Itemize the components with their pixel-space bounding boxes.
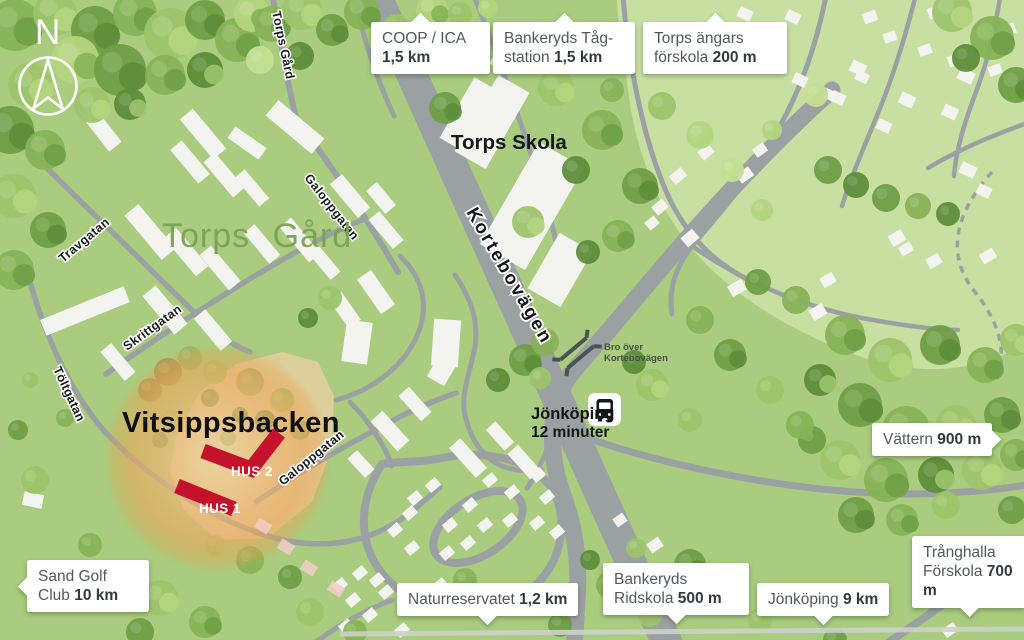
tree-highlight bbox=[889, 413, 908, 432]
tree-highlight bbox=[724, 162, 734, 172]
tree-highlight bbox=[194, 611, 207, 624]
tree-highlight bbox=[1002, 500, 1013, 511]
tree bbox=[804, 83, 828, 107]
tree bbox=[453, 568, 477, 592]
tree bbox=[296, 598, 324, 626]
tree-highlight bbox=[79, 92, 93, 106]
tree-highlight bbox=[808, 87, 818, 97]
tree bbox=[601, 124, 623, 146]
tree-highlight bbox=[923, 462, 937, 476]
tree bbox=[361, 7, 381, 27]
site-label-vitsippsbacken: Vitsippsbacken bbox=[122, 407, 340, 439]
tree-highlight bbox=[790, 415, 801, 426]
hus1-label: HUS 1 bbox=[199, 501, 241, 516]
tree bbox=[689, 560, 707, 578]
tree bbox=[529, 367, 551, 389]
tree-highlight bbox=[11, 423, 19, 431]
tree-highlight bbox=[629, 541, 637, 549]
tree bbox=[872, 184, 900, 212]
tree bbox=[762, 120, 782, 140]
tree-highlight bbox=[583, 553, 591, 561]
tree bbox=[786, 411, 814, 439]
tree bbox=[782, 286, 810, 314]
tree bbox=[13, 189, 37, 213]
tree bbox=[164, 69, 186, 91]
tree bbox=[814, 156, 842, 184]
tree-highlight bbox=[714, 592, 724, 602]
tree bbox=[91, 100, 111, 120]
tree-highlight bbox=[977, 23, 995, 41]
tree bbox=[859, 398, 883, 422]
tree bbox=[204, 65, 224, 85]
tree-highlight bbox=[222, 25, 240, 43]
tree-highlight bbox=[151, 61, 167, 77]
tree bbox=[651, 380, 669, 398]
tree bbox=[936, 202, 960, 226]
tree bbox=[562, 156, 590, 184]
tree-highlight bbox=[679, 554, 692, 567]
tree-highlight bbox=[322, 290, 332, 300]
tree bbox=[431, 5, 449, 23]
tree-highlight bbox=[514, 349, 527, 362]
bridge-label-line2: Kortebovägen bbox=[604, 353, 668, 364]
tree bbox=[745, 269, 771, 295]
tree-highlight bbox=[831, 321, 847, 337]
tree bbox=[686, 121, 714, 149]
tree bbox=[756, 376, 784, 404]
tree-highlight bbox=[760, 380, 771, 391]
area-label-torps-gard: Torps Gård bbox=[162, 217, 352, 255]
tree-highlight bbox=[1005, 444, 1018, 457]
tree-highlight bbox=[301, 311, 309, 319]
tree-highlight bbox=[940, 206, 950, 216]
tree bbox=[885, 473, 909, 497]
tree-highlight bbox=[147, 585, 161, 599]
hus2-label: HUS 2 bbox=[231, 464, 273, 479]
tree-highlight bbox=[191, 6, 207, 22]
tree-highlight bbox=[543, 75, 557, 89]
tree-highlight bbox=[600, 575, 611, 586]
tree bbox=[1001, 410, 1021, 430]
tree-highlight bbox=[604, 82, 614, 92]
tree bbox=[984, 360, 1004, 380]
tree-highlight bbox=[627, 173, 641, 187]
tree bbox=[78, 533, 102, 557]
tree-highlight bbox=[876, 188, 887, 199]
tree-highlight bbox=[239, 1, 253, 15]
tree bbox=[905, 193, 931, 219]
tree-highlight bbox=[845, 390, 863, 408]
tree-highlight bbox=[250, 50, 261, 61]
tree bbox=[617, 231, 635, 249]
tree bbox=[855, 510, 875, 530]
tree-highlight bbox=[719, 344, 732, 357]
tree bbox=[981, 464, 1003, 486]
tree-highlight bbox=[282, 569, 292, 579]
tree bbox=[901, 515, 919, 533]
tree bbox=[129, 99, 147, 117]
tree-highlight bbox=[386, 18, 397, 29]
tree-highlight bbox=[843, 502, 857, 516]
tree-highlight bbox=[684, 52, 694, 62]
tree-highlight bbox=[24, 374, 30, 380]
tree-highlight bbox=[321, 19, 334, 32]
tree bbox=[935, 470, 955, 490]
tree bbox=[13, 264, 35, 286]
tree-highlight bbox=[809, 369, 822, 382]
tree-highlight bbox=[517, 211, 530, 224]
tree bbox=[790, 590, 810, 610]
tree-highlight bbox=[690, 125, 701, 136]
tree bbox=[843, 172, 869, 198]
tree bbox=[382, 14, 410, 42]
tree-highlight bbox=[972, 352, 986, 366]
tree bbox=[506, 586, 534, 614]
tree-highlight bbox=[566, 160, 577, 171]
tree-highlight bbox=[765, 123, 773, 131]
tree-highlight bbox=[1003, 72, 1017, 86]
tree bbox=[991, 31, 1015, 55]
tree-highlight bbox=[818, 160, 829, 171]
tree-highlight bbox=[968, 456, 984, 472]
tree bbox=[298, 308, 318, 328]
tree bbox=[638, 603, 662, 627]
tree bbox=[889, 353, 913, 377]
tree bbox=[486, 368, 510, 392]
tree-highlight bbox=[936, 495, 947, 506]
tree bbox=[22, 372, 38, 388]
tree-highlight bbox=[749, 273, 759, 283]
tree-highlight bbox=[82, 537, 92, 547]
tree bbox=[952, 44, 980, 72]
tree bbox=[932, 491, 960, 519]
tree-highlight bbox=[490, 372, 500, 382]
tree bbox=[44, 144, 66, 166]
tree bbox=[444, 103, 462, 121]
tree bbox=[648, 92, 676, 120]
tree-highlight bbox=[926, 331, 942, 347]
tree bbox=[626, 538, 646, 558]
tree-highlight bbox=[652, 96, 663, 107]
tree-highlight bbox=[130, 622, 141, 633]
tree-highlight bbox=[847, 176, 857, 186]
tree bbox=[951, 6, 973, 28]
tree bbox=[639, 181, 659, 201]
tree bbox=[21, 466, 49, 494]
tree-highlight bbox=[434, 97, 447, 110]
tree-highlight bbox=[989, 402, 1003, 416]
compass-n-label: N bbox=[35, 13, 60, 52]
tree-highlight bbox=[452, 6, 462, 16]
tree bbox=[448, 2, 472, 26]
tree-highlight bbox=[826, 446, 842, 462]
tree bbox=[710, 588, 734, 612]
tree bbox=[596, 571, 624, 599]
tree bbox=[119, 62, 148, 91]
tree bbox=[939, 339, 961, 361]
tree-highlight bbox=[481, 1, 489, 9]
tree-highlight bbox=[793, 593, 801, 601]
tree bbox=[686, 306, 714, 334]
tree-highlight bbox=[786, 290, 797, 301]
tree bbox=[527, 217, 545, 235]
tree bbox=[955, 419, 977, 441]
tree bbox=[819, 375, 837, 393]
tree-highlight bbox=[552, 617, 562, 627]
tree bbox=[751, 199, 773, 221]
tree-highlight bbox=[1005, 329, 1018, 342]
tree bbox=[204, 617, 222, 635]
tree bbox=[678, 408, 702, 432]
tree-highlight bbox=[752, 612, 762, 622]
tree-highlight bbox=[875, 345, 893, 363]
tree-highlight bbox=[349, 0, 363, 14]
tree-highlight bbox=[59, 412, 66, 419]
tree bbox=[318, 286, 342, 310]
tree-highlight bbox=[510, 590, 521, 601]
tree bbox=[680, 48, 704, 72]
tree-highlight bbox=[25, 470, 36, 481]
bus-stop-label-line1: Jönköping bbox=[531, 405, 614, 423]
tree-highlight bbox=[102, 52, 123, 73]
map-canvas: HUS 2 HUS 1 N Bro över Kortebovägen Jönk… bbox=[0, 0, 1024, 640]
tree-highlight bbox=[300, 602, 311, 613]
tree-highlight bbox=[152, 16, 173, 37]
tree-highlight bbox=[588, 116, 604, 132]
bridge-label-line1: Bro över bbox=[604, 342, 643, 353]
tree-highlight bbox=[909, 197, 919, 207]
tree bbox=[729, 350, 747, 368]
tree-highlight bbox=[942, 411, 958, 427]
school-label: Torps Skola bbox=[451, 131, 567, 154]
tree-highlight bbox=[192, 57, 206, 71]
tree-highlight bbox=[31, 136, 47, 152]
tree-highlight bbox=[956, 48, 967, 59]
tree bbox=[600, 78, 624, 102]
tree bbox=[720, 158, 744, 182]
tree bbox=[576, 240, 600, 264]
tree bbox=[331, 25, 349, 43]
tree bbox=[580, 550, 600, 570]
tree-highlight bbox=[0, 256, 16, 272]
tree-highlight bbox=[871, 465, 889, 483]
tree bbox=[839, 454, 861, 476]
tree-highlight bbox=[119, 93, 132, 106]
tree bbox=[555, 83, 575, 103]
tree-highlight bbox=[690, 310, 701, 321]
tree bbox=[47, 225, 67, 245]
tree-highlight bbox=[891, 509, 904, 522]
tree-highlight bbox=[754, 202, 763, 211]
tree bbox=[246, 46, 274, 74]
tree-highlight bbox=[682, 412, 692, 422]
tree-highlight bbox=[642, 607, 652, 617]
tree-highlight bbox=[641, 374, 654, 387]
tree bbox=[278, 565, 302, 589]
bus-stop-label-line2: 12 minuter bbox=[531, 424, 609, 441]
tree-highlight bbox=[532, 370, 541, 379]
tree-highlight bbox=[78, 13, 97, 32]
tree bbox=[844, 329, 866, 351]
map-artwork: HUS 2 HUS 1 N Bro över Kortebovägen Jönk… bbox=[0, 0, 1024, 640]
tree-highlight bbox=[580, 244, 590, 254]
tree-highlight bbox=[457, 572, 467, 582]
tree bbox=[905, 423, 931, 449]
tree bbox=[8, 420, 28, 440]
tree-highlight bbox=[607, 225, 620, 238]
tree-highlight bbox=[35, 217, 49, 231]
tree bbox=[159, 593, 179, 613]
